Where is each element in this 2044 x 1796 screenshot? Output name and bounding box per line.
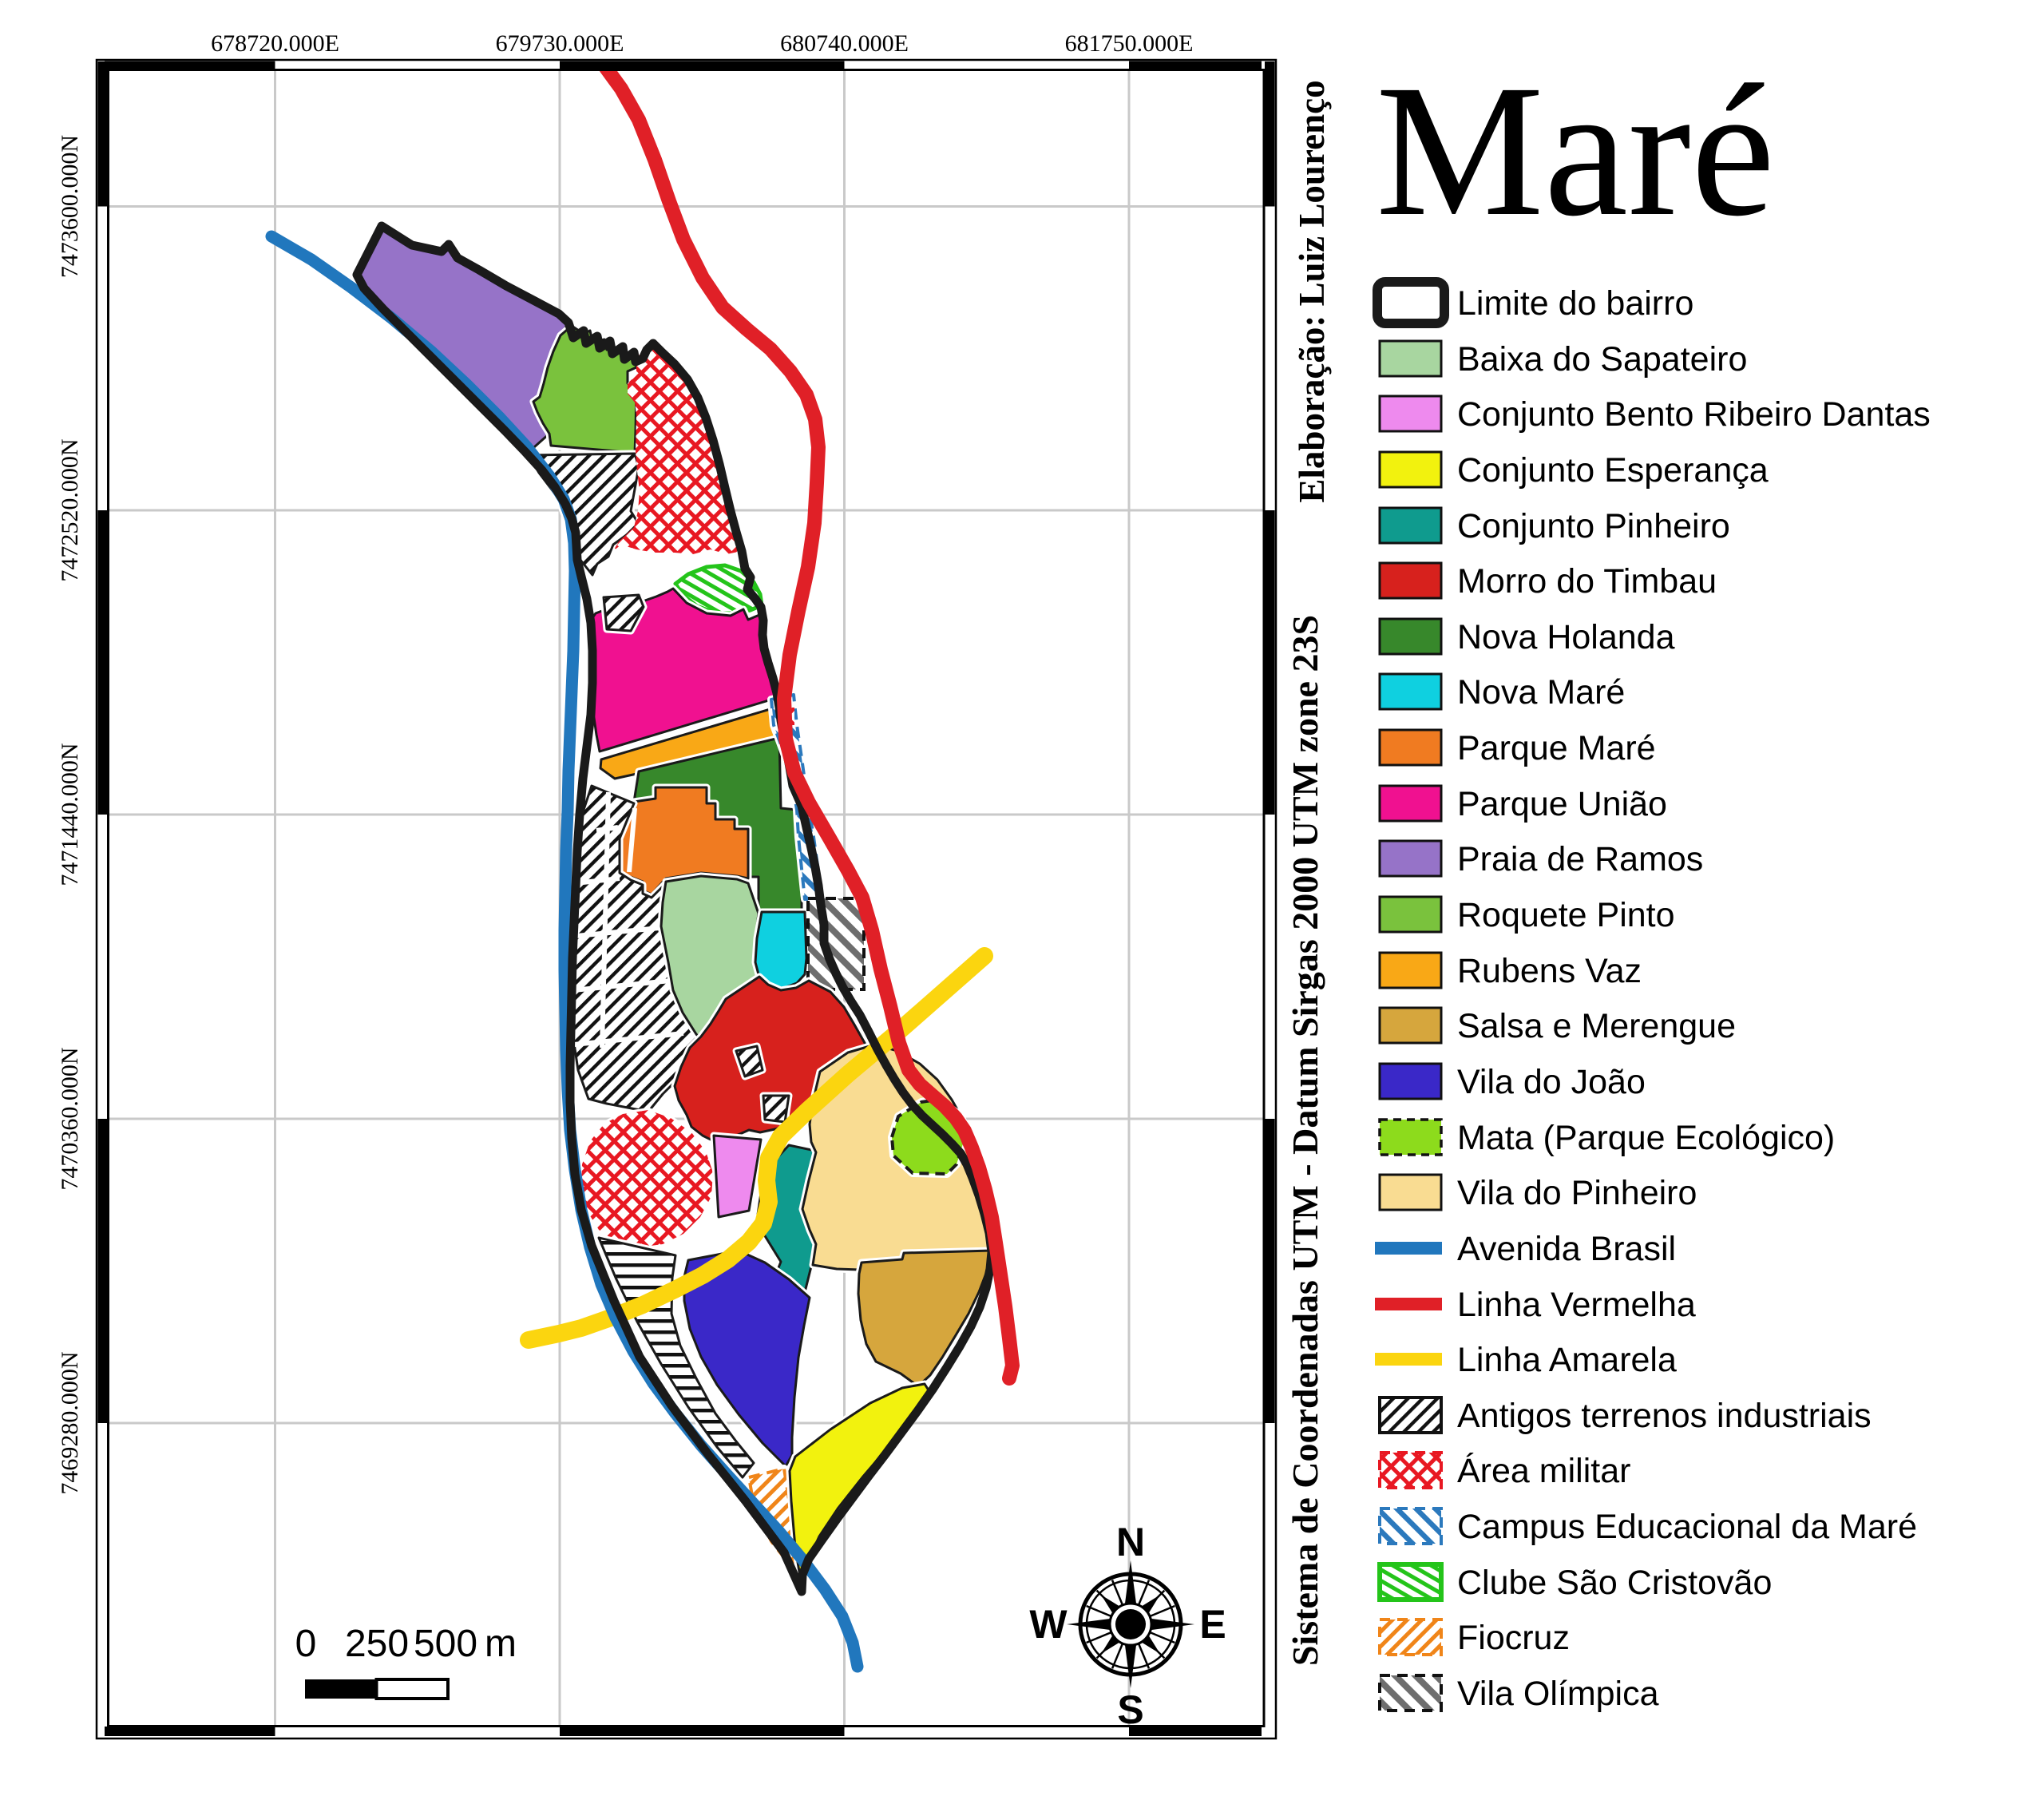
svg-text:Maré: Maré [1376, 46, 1775, 256]
svg-text:681750.000E: 681750.000E [1065, 30, 1194, 57]
svg-text:W: W [1029, 1602, 1068, 1647]
svg-text:Limite do bairro: Limite do bairro [1457, 284, 1693, 323]
svg-text:Conjunto Pinheiro: Conjunto Pinheiro [1457, 507, 1730, 545]
svg-text:Avenida Brasil: Avenida Brasil [1457, 1230, 1676, 1268]
svg-text:7469280.000N: 7469280.000N [57, 1351, 83, 1494]
svg-text:Conjunto Bento Ribeiro Dantas: Conjunto Bento Ribeiro Dantas [1457, 395, 1931, 434]
svg-text:Salsa e Merengue: Salsa e Merengue [1457, 1007, 1736, 1045]
svg-text:N: N [1116, 1520, 1145, 1564]
svg-text:E: E [1199, 1602, 1226, 1647]
svg-text:Área militar: Área militar [1457, 1452, 1630, 1490]
svg-text:Parque União: Parque União [1457, 785, 1667, 823]
svg-text:Rubens Vaz: Rubens Vaz [1457, 952, 1642, 990]
svg-text:Linha Amarela: Linha Amarela [1457, 1341, 1677, 1379]
svg-text:Baixa do Sapateiro: Baixa do Sapateiro [1457, 340, 1747, 379]
svg-text:7470360.000N: 7470360.000N [57, 1047, 83, 1190]
svg-text:Mata (Parque Ecológico): Mata (Parque Ecológico) [1457, 1119, 1835, 1157]
svg-text:Fiocruz: Fiocruz [1457, 1619, 1570, 1657]
svg-text:Parque Maré: Parque Maré [1457, 729, 1656, 767]
svg-text:Roquete Pinto: Roquete Pinto [1457, 896, 1675, 934]
svg-text:678720.000E: 678720.000E [211, 30, 339, 57]
svg-text:7472520.000N: 7472520.000N [57, 438, 83, 581]
svg-text:Elaboração: Luiz Lourenço: Elaboração: Luiz Lourenço [1292, 80, 1332, 502]
svg-text:250: 250 [345, 1623, 409, 1665]
svg-text:7473600.000N: 7473600.000N [57, 135, 83, 278]
svg-text:Vila Olímpica: Vila Olímpica [1457, 1675, 1659, 1713]
svg-text:Linha Vermelha: Linha Vermelha [1457, 1286, 1696, 1324]
svg-text:679730.000E: 679730.000E [496, 30, 624, 57]
svg-text:Nova Maré: Nova Maré [1457, 673, 1625, 712]
svg-text:Campus Educacional da Maré: Campus Educacional da Maré [1457, 1508, 1917, 1546]
svg-text:Vila do Pinheiro: Vila do Pinheiro [1457, 1174, 1697, 1212]
svg-text:Conjunto Esperança: Conjunto Esperança [1457, 451, 1769, 490]
svg-text:0: 0 [295, 1623, 317, 1665]
svg-text:Vila do João: Vila do João [1457, 1063, 1646, 1101]
svg-text:Sistema de Coordenadas UTM - D: Sistema de Coordenadas UTM - Datum Sirga… [1285, 615, 1325, 1666]
svg-text:Clube São Cristovão: Clube São Cristovão [1457, 1564, 1772, 1602]
svg-text:Morro do Timbau: Morro do Timbau [1457, 562, 1717, 601]
svg-text:m: m [485, 1623, 517, 1665]
svg-text:680740.000E: 680740.000E [780, 30, 909, 57]
svg-text:Antigos terrenos industriais: Antigos terrenos industriais [1457, 1397, 1872, 1435]
svg-text:Nova Holanda: Nova Holanda [1457, 618, 1675, 656]
svg-text:7471440.000N: 7471440.000N [57, 743, 83, 886]
svg-text:S: S [1117, 1687, 1143, 1732]
svg-text:500: 500 [414, 1623, 477, 1665]
svg-text:Praia de Ramos: Praia de Ramos [1457, 840, 1703, 878]
